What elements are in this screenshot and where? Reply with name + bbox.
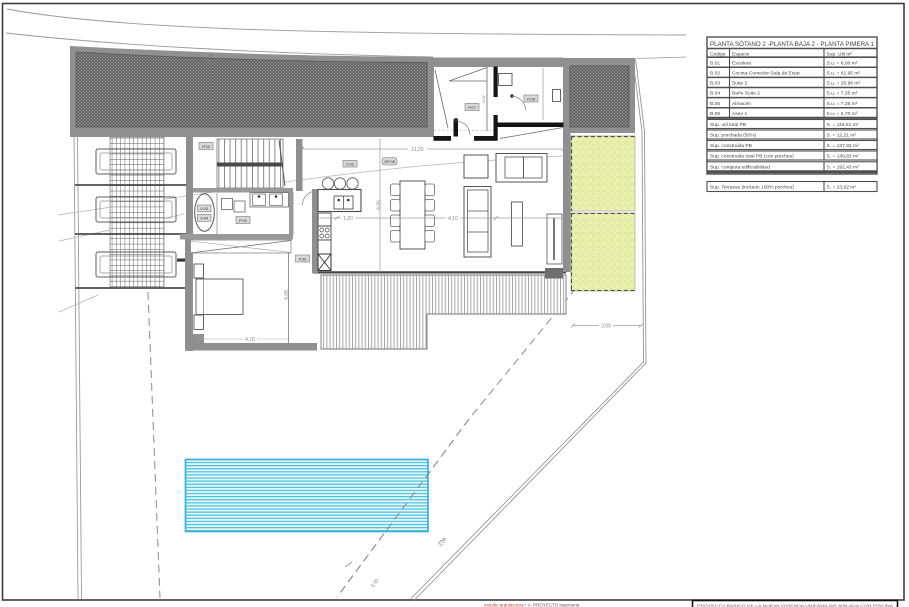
svg-text:Escalera: Escalera <box>732 60 751 66</box>
svg-text:V.04: V.04 <box>200 216 209 221</box>
svg-text:4,05: 4,05 <box>284 290 290 300</box>
svg-text:estudio arquitectura: estudio arquitectura <box>484 603 524 607</box>
svg-text:V.02: V.02 <box>346 162 355 167</box>
svg-text:3,00: 3,00 <box>601 324 611 330</box>
svg-text:S. = 192,43 m²: S. = 192,43 m² <box>827 165 860 171</box>
svg-text:11,20: 11,20 <box>411 147 423 153</box>
svg-text:Sup. computa edificabilidad: Sup. computa edificabilidad <box>710 165 770 171</box>
svg-text:B.03: B.03 <box>710 81 720 87</box>
svg-text:S.u. = 7,35 m²: S.u. = 7,35 m² <box>827 91 858 97</box>
svg-text:S. = 23,62 m²: S. = 23,62 m² <box>827 185 857 191</box>
svg-text:P.07: P.07 <box>468 105 476 110</box>
svg-text:P.03: P.03 <box>202 144 210 149</box>
svg-text:Sup. construida PB: Sup. construida PB <box>710 143 752 149</box>
svg-text:P.06: P.06 <box>299 256 307 261</box>
svg-text:4,70: 4,70 <box>245 337 255 343</box>
svg-text:B.04: B.04 <box>710 91 720 97</box>
svg-text:V.03: V.03 <box>200 206 209 211</box>
svg-text:Sup. construida total PB (con: Sup. construida total PB (con porches) <box>710 154 794 160</box>
svg-text:S.u. = 61,95 m²: S.u. = 61,95 m² <box>827 71 861 77</box>
svg-text:8,05: 8,05 <box>377 200 383 210</box>
svg-text:Aseo 1: Aseo 1 <box>732 111 748 117</box>
svg-text:B.05: B.05 <box>710 101 720 107</box>
svg-text:S.u. = 6,70 m²: S.u. = 6,70 m² <box>827 111 858 117</box>
svg-text:P.08: P.08 <box>527 96 535 101</box>
svg-text:Sup. util total PB: Sup. util total PB <box>710 122 746 128</box>
svg-text:Sup. porchada (50%): Sup. porchada (50%) <box>710 133 757 139</box>
svg-text:S.u. = 25,98 m²: S.u. = 25,98 m² <box>827 81 861 87</box>
svg-text:S.u. = 6,00 m²: S.u. = 6,00 m² <box>827 60 858 66</box>
svg-text:1,20: 1,20 <box>343 216 353 222</box>
svg-text:Almacén: Almacén <box>732 101 751 107</box>
svg-text:S. = 149,83 m²: S. = 149,83 m² <box>827 154 860 160</box>
svg-text:+ A. PROYECTO ingenieria: + A. PROYECTO ingenieria <box>524 603 580 607</box>
svg-text:GP.08: GP.08 <box>384 159 396 164</box>
svg-text:S.u. = 7,35 m²: S.u. = 7,35 m² <box>827 101 858 107</box>
svg-text:S. = 137,62 m²: S. = 137,62 m² <box>827 143 860 149</box>
svg-text:B.02: B.02 <box>710 71 720 77</box>
svg-text:P.05: P.05 <box>239 218 247 223</box>
svg-text:Sup. Terrazas (incluido 100% p: Sup. Terrazas (incluido 100% porches) <box>710 185 794 191</box>
svg-text:Cocina-Comedor-Sala de Estar: Cocina-Comedor-Sala de Estar <box>732 71 800 77</box>
svg-text:V.07: V.07 <box>481 94 486 103</box>
svg-text:4,10: 4,10 <box>448 216 458 222</box>
svg-text:S. = 12,21 m²: S. = 12,21 m² <box>827 133 857 139</box>
svg-text:B.06: B.06 <box>710 111 720 117</box>
svg-text:S. = 116,61 m²: S. = 116,61 m² <box>827 122 859 128</box>
svg-text:Suite 2: Suite 2 <box>732 81 748 87</box>
svg-text:PLANTA SÓTANO 2 -PLANTA BAJA 2: PLANTA SÓTANO 2 -PLANTA BAJA 2 - PLANTA … <box>710 41 875 48</box>
svg-text:Baño Suite 2: Baño Suite 2 <box>732 91 760 97</box>
svg-text:B.01: B.01 <box>710 60 720 66</box>
